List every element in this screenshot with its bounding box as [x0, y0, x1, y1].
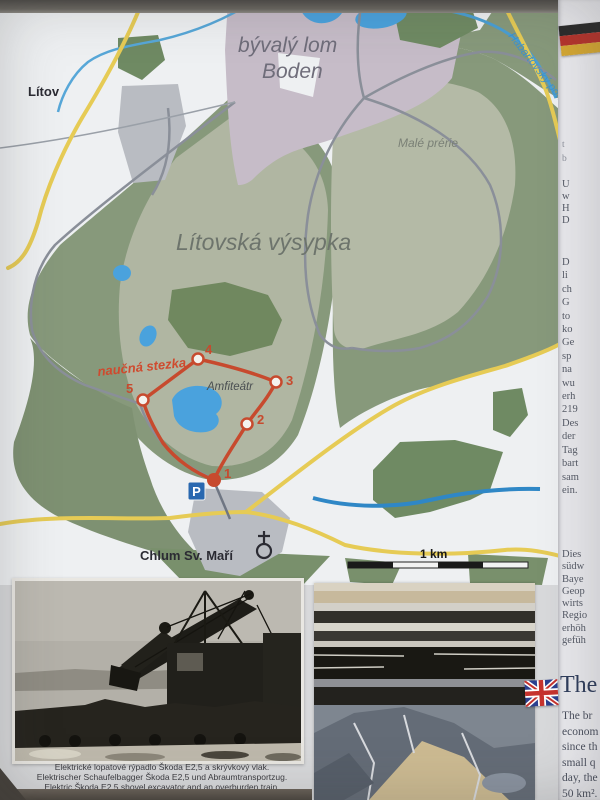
fragment-line: U [562, 179, 600, 191]
fragment-line: bart [562, 457, 600, 470]
photo-top-edge [0, 0, 568, 13]
fragment-line: D [562, 256, 600, 269]
german-flag-icon [559, 22, 600, 56]
fragment-line: G [562, 296, 600, 309]
parking-icon: P [188, 482, 205, 500]
fragment-line: ch [562, 283, 600, 296]
scale-label: 1 km [420, 547, 447, 561]
fragment-line: ko [562, 323, 600, 336]
strata-photo [314, 583, 535, 800]
excavator-photo [12, 578, 304, 764]
fragment-line: 50 km². [562, 787, 600, 800]
fragment-line: ein. [562, 484, 600, 497]
strata-photo-art [314, 583, 535, 800]
fragment-line: The br [562, 709, 600, 725]
fragment-line: small q [562, 756, 600, 772]
fragment-line: li [562, 269, 600, 282]
fragment-line: Tag [562, 444, 600, 457]
fragment-line: since th [562, 740, 600, 756]
excavator-photo-art [15, 581, 301, 761]
trail-point-1-label: 1 [224, 466, 231, 481]
fragment-line: w [562, 191, 600, 203]
fragment-line: na [562, 363, 600, 376]
text-fragments-german: D li ch G to ko Ge sp na wu erh 219 Des … [562, 256, 600, 497]
fragment-line: erhöh [562, 623, 600, 635]
forest-wedge-bottom3 [468, 554, 548, 585]
fragment-line: day, the [562, 771, 600, 787]
parking-letter: P [192, 484, 201, 499]
fragment-line: to [562, 310, 600, 323]
label-boden-1: bývalý lom [238, 34, 337, 57]
info-board-photo: 1 2 3 4 5 P 1 km Lítov bývalý lom Boden [0, 0, 600, 800]
label-amfiteatr: Amfiteátr [206, 381, 254, 393]
trail-point-3-marker [271, 377, 282, 388]
fragment-line: wirts [562, 598, 600, 610]
fragment-line: b [562, 152, 600, 166]
text-fragments-german-2: Dies südw Baye Geop wirts Regio erhöh ge… [562, 549, 600, 647]
fragment-line: erh [562, 390, 600, 403]
english-section-heading: The [560, 672, 597, 699]
trail-point-4-label: 4 [205, 342, 213, 357]
fragment-line: Baye [562, 574, 600, 586]
uk-flag-icon [524, 679, 558, 707]
label-chlum: Chlum Sv. Maří [140, 548, 233, 563]
small-pond-1 [113, 265, 131, 281]
label-litov: Lítov [28, 84, 60, 99]
trail-point-5-label: 5 [126, 381, 133, 396]
fragment-line: Regio [562, 610, 600, 622]
text-panel-cut: t b U w H D D li ch G to ko Ge sp na wu … [558, 0, 600, 800]
fragment-line: D [562, 215, 600, 227]
fragment-line: Dies [562, 549, 600, 561]
fragment-line: t [562, 138, 600, 152]
trail-point-3-label: 3 [286, 373, 293, 388]
fragment-line: Des [562, 417, 600, 430]
label-male-prerie: Malé prérie [398, 136, 458, 150]
trail-map: 1 2 3 4 5 P 1 km Lítov bývalý lom Boden [0, 0, 600, 588]
label-boden-2: Boden [262, 60, 323, 83]
fragment-line: südw [562, 561, 600, 573]
fragment-line: sp [562, 350, 600, 363]
photo-caption: Elektrické lopatové rýpadlo Škoda E2,5 a… [14, 763, 310, 792]
fragment-line: Geop [562, 586, 600, 598]
text-fragments-english: The br econom since th small q day, the … [562, 709, 600, 800]
fragment-line: wu [562, 377, 600, 390]
trail-point-2-marker [242, 419, 253, 430]
trail-point-5-marker [138, 395, 149, 406]
fragment-line: econom [562, 725, 600, 741]
fragment-line: sam [562, 471, 600, 484]
trail-point-1-marker [207, 473, 221, 487]
label-vysypka: Lítovská výsypka [176, 229, 351, 255]
trail-point-4-marker [193, 354, 204, 365]
photo-bottom-edge [0, 789, 312, 800]
fragment-line: der [562, 430, 600, 443]
fragment-line: 219 [562, 403, 600, 416]
text-fragments-top: t b [562, 138, 600, 166]
trail-point-2-label: 2 [257, 412, 264, 427]
fragment-line: Ge [562, 336, 600, 349]
text-fragments-a: U w H D [562, 179, 600, 227]
fragment-line: gefüh [562, 635, 600, 647]
map-svg: 1 2 3 4 5 P 1 km Lítov bývalý lom Boden [0, 0, 600, 588]
fragment-line: H [562, 203, 600, 215]
